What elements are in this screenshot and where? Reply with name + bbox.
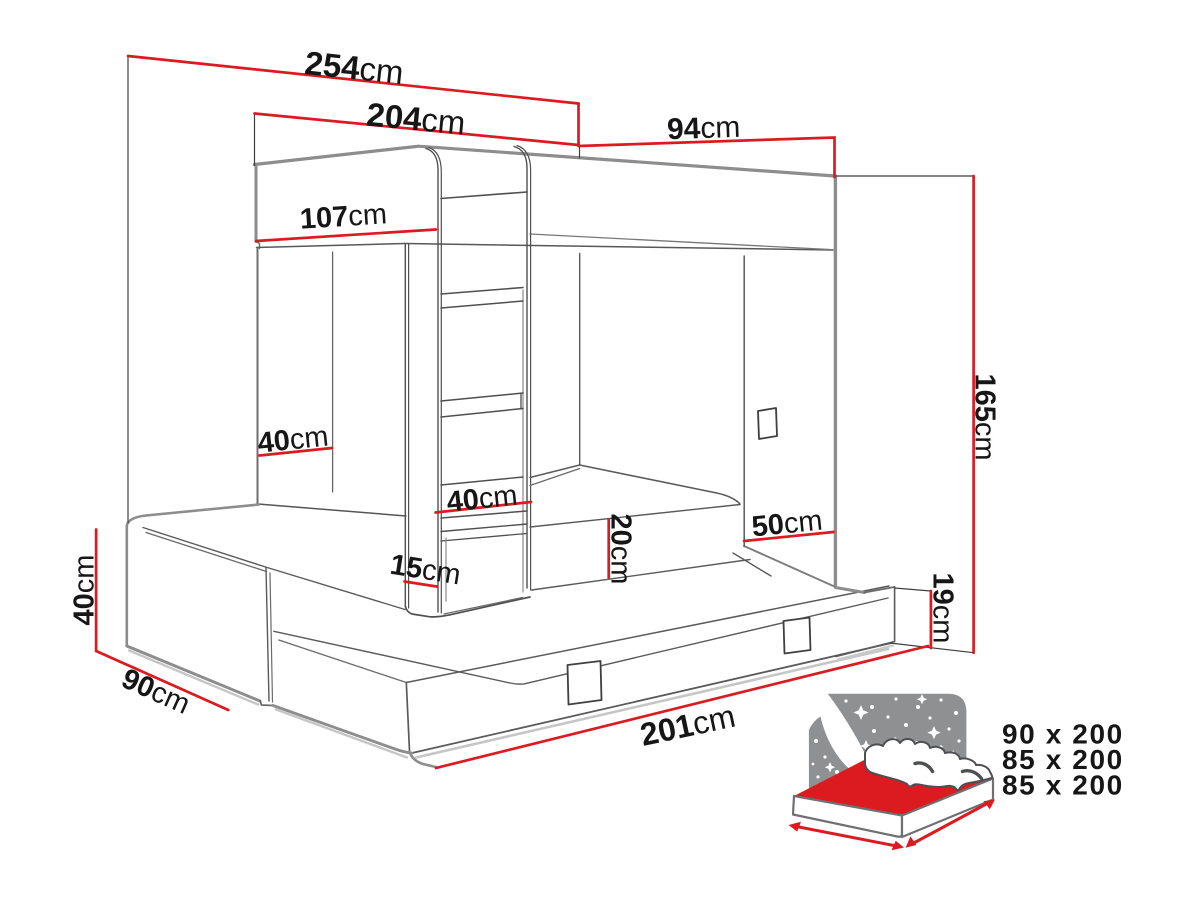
svg-text:90cm: 90cm (117, 663, 195, 721)
svg-text:204cm: 204cm (365, 96, 467, 142)
svg-text:50cm: 50cm (750, 505, 824, 544)
svg-text:94cm: 94cm (666, 111, 740, 147)
svg-text:19cm: 19cm (927, 573, 959, 644)
svg-text:165cm: 165cm (969, 373, 1001, 460)
svg-text:201cm: 201cm (637, 698, 738, 753)
svg-text:40cm: 40cm (256, 420, 330, 459)
svg-text:15cm: 15cm (388, 549, 463, 592)
svg-text:254cm: 254cm (303, 44, 405, 91)
svg-text:20cm: 20cm (605, 514, 637, 585)
svg-text:40cm: 40cm (69, 555, 101, 626)
svg-text:85 x 200: 85 x 200 (1002, 770, 1124, 801)
svg-text:107cm: 107cm (299, 198, 388, 235)
